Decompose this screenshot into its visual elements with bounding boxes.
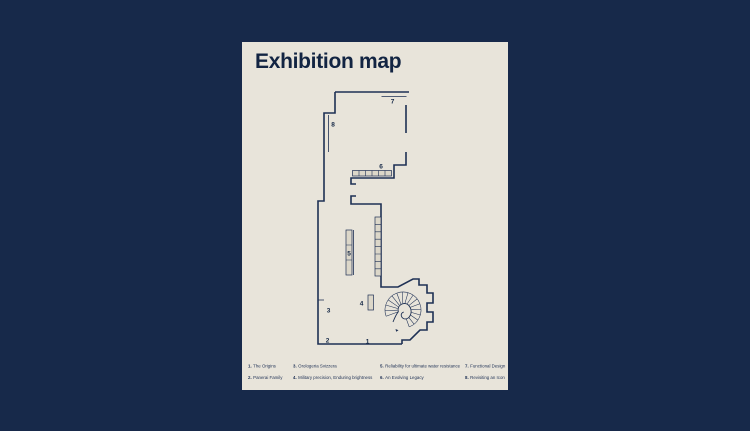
legend-item-4: 4.Military precision, Enduring brightnes…: [293, 375, 373, 380]
legend: 1.The Origins 2.Panerai Family 3.Orologe…: [248, 364, 506, 381]
map-marker-6: 6: [379, 164, 383, 171]
page-background: { "poster": { "title": "Exhibition map",…: [0, 0, 750, 431]
floor-plan: 1 2 3 4 5 6 7 8 1.The Origins 2.Panerai …: [242, 42, 508, 390]
map-marker-4: 4: [360, 301, 364, 308]
spiral-staircase: [385, 292, 421, 332]
legend-item-2: 2.Panerai Family: [248, 375, 283, 380]
map-marker-1: 1: [366, 339, 370, 346]
wall-gallery-and-stair-enclosure: [351, 196, 433, 344]
legend-item-6: 6.An Evolving Legacy: [380, 375, 425, 380]
legend-item-3: 3.Orologeria Svizzera: [293, 364, 337, 369]
exhibition-poster: Exhibition map: [242, 42, 508, 390]
map-marker-5: 5: [347, 251, 351, 258]
map-marker-3: 3: [327, 308, 331, 315]
map-marker-7: 7: [391, 99, 395, 106]
map-marker-2: 2: [326, 338, 330, 345]
legend-item-5: 5.Reliability for ultimate water resista…: [380, 364, 461, 369]
stair-direction-arrow: [396, 329, 399, 332]
legend-item-7: 7.Functional Design: [465, 364, 506, 369]
display-column: [375, 217, 381, 276]
legend-item-8: 8.Revisiting an Icon: [465, 375, 505, 380]
legend-item-1: 1.The Origins: [248, 364, 277, 369]
display-case-4: [368, 295, 374, 310]
map-marker-8: 8: [331, 122, 335, 129]
display-case-6: [353, 171, 392, 177]
